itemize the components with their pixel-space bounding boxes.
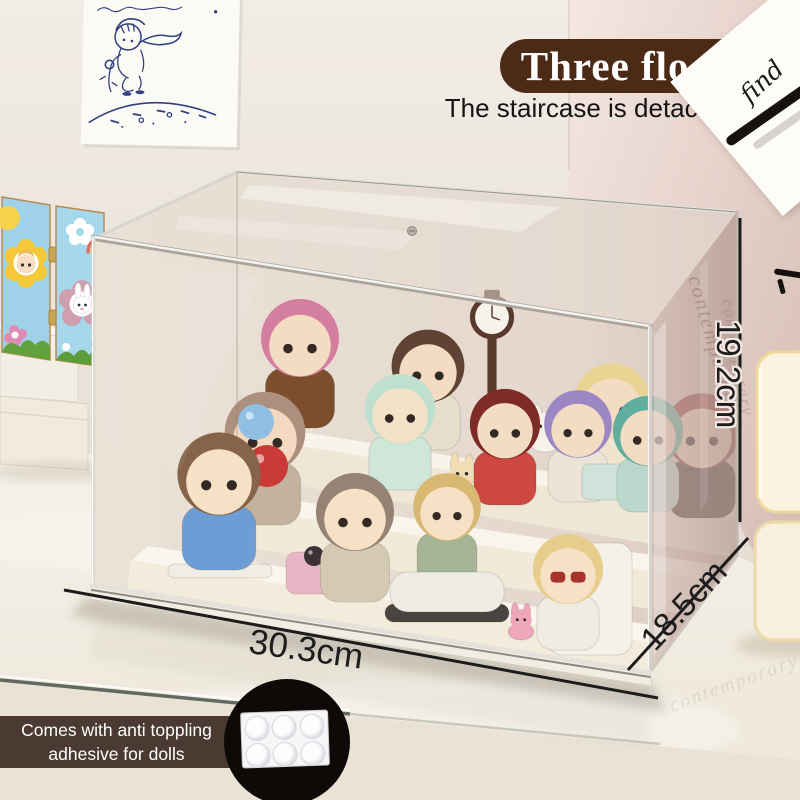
bumper-car: [390, 572, 504, 612]
adhesive-dot: [300, 741, 326, 767]
adhesive-dot: [299, 714, 325, 740]
height-dimension-label: 19.2cm: [709, 320, 747, 428]
adhesive-inset-circle: [224, 679, 350, 800]
little-prince-sketch-card: [81, 0, 243, 150]
anti-toppling-banner: Comes with anti toppling adhesive for do…: [0, 716, 233, 768]
adhesive-dot: [245, 743, 271, 769]
blue-balloon: [238, 404, 274, 440]
figurine-stroller-kid: [316, 473, 394, 602]
adhesive-dot: [244, 716, 270, 742]
adhesive-dot: [271, 715, 297, 741]
figurine-bumper-car-boy: [413, 473, 481, 585]
figurine-bear-hoodie-kid: [177, 432, 260, 570]
banner-line1: Comes with anti toppling: [0, 718, 233, 742]
product-photo-scene: CO OR contemporary contemporary: [0, 0, 800, 800]
adhesive-pad: [240, 709, 330, 768]
figurine-sunglasses-girl: [533, 534, 603, 650]
banner-line2: adhesive for dolls: [0, 742, 233, 766]
screw-icon: [408, 227, 417, 236]
figurine-teapot-kid: [365, 374, 435, 490]
adhesive-dot: [272, 742, 298, 768]
figurine-berry-hat-boy: [470, 389, 540, 505]
